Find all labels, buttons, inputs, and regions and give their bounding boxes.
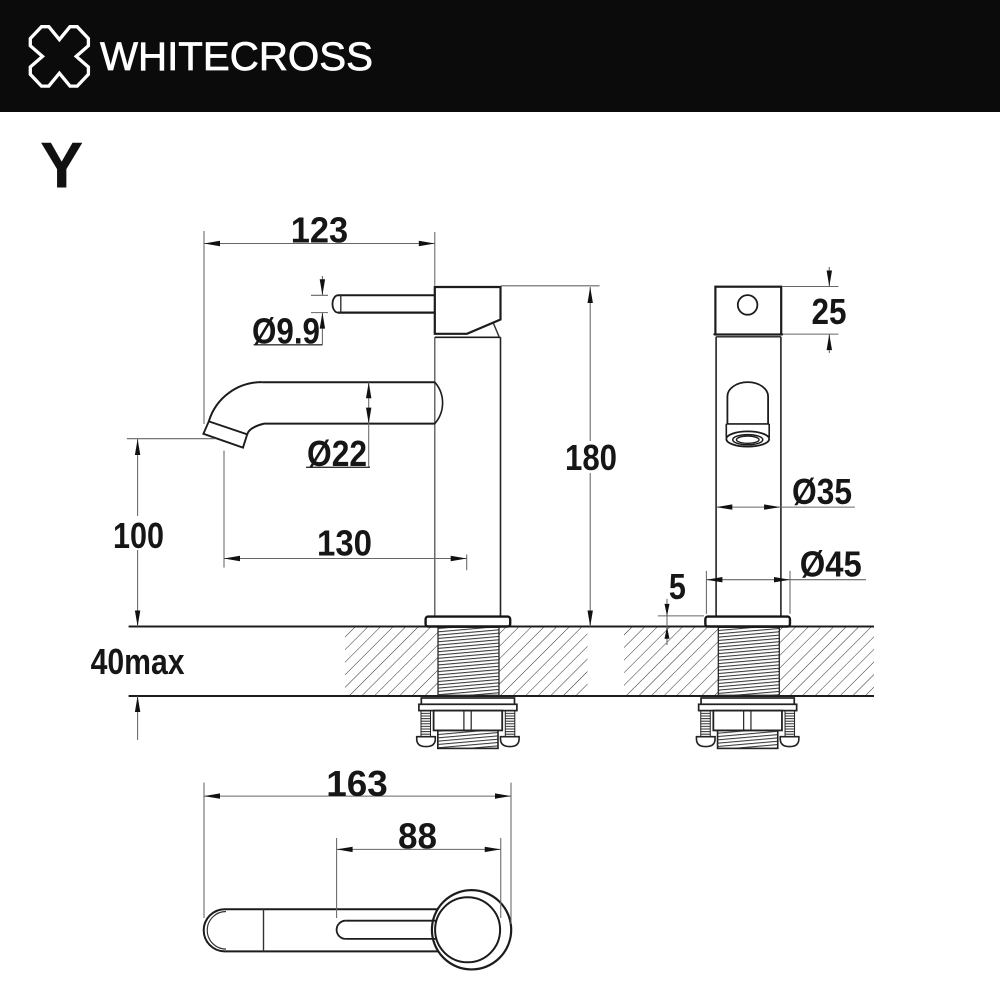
svg-text:Ø45: Ø45 [800, 544, 862, 585]
svg-text:Ø35: Ø35 [792, 471, 852, 512]
svg-text:88: 88 [398, 816, 437, 857]
svg-text:163: 163 [326, 763, 388, 804]
svg-text:100: 100 [113, 515, 164, 556]
svg-text:Ø9.9: Ø9.9 [252, 311, 320, 352]
svg-text:130: 130 [317, 523, 372, 564]
svg-text:Y: Y [40, 129, 83, 202]
svg-text:WHITECROSS: WHITECROSS [100, 35, 373, 79]
svg-text:25: 25 [812, 291, 847, 332]
svg-text:Ø22: Ø22 [307, 433, 367, 474]
svg-text:40max: 40max [91, 641, 186, 682]
svg-text:180: 180 [565, 437, 617, 478]
svg-text:123: 123 [291, 210, 348, 251]
svg-text:5: 5 [669, 566, 686, 607]
